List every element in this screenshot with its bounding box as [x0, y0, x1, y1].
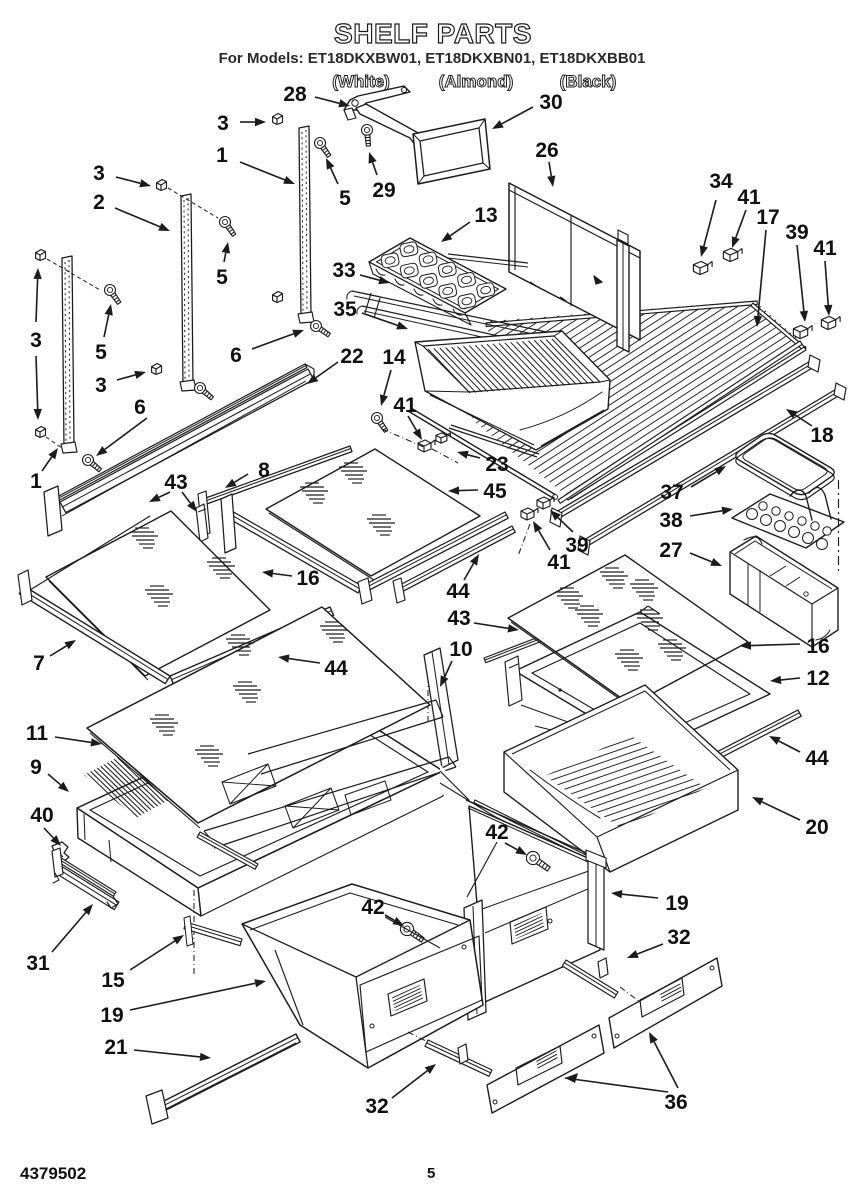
svg-text:3: 3: [217, 112, 229, 135]
svg-text:(White): (White): [332, 72, 390, 91]
svg-text:7: 7: [33, 652, 45, 675]
svg-text:18: 18: [810, 424, 834, 447]
svg-text:5: 5: [427, 1165, 435, 1182]
svg-text:37: 37: [660, 481, 683, 504]
svg-text:26: 26: [535, 139, 558, 162]
svg-text:10: 10: [449, 638, 472, 661]
svg-text:44: 44: [324, 657, 348, 680]
svg-text:5: 5: [95, 341, 107, 364]
svg-text:45: 45: [483, 480, 507, 503]
svg-text:41: 41: [813, 237, 837, 260]
svg-text:43: 43: [447, 607, 470, 630]
svg-text:34: 34: [709, 170, 733, 193]
svg-text:2: 2: [93, 191, 105, 214]
svg-text:SHELF PARTS: SHELF PARTS: [334, 18, 532, 49]
svg-text:32: 32: [667, 926, 690, 949]
svg-text:17: 17: [756, 206, 779, 229]
svg-text:16: 16: [806, 635, 829, 658]
svg-text:39: 39: [785, 221, 808, 244]
svg-text:(Almond): (Almond): [439, 72, 514, 91]
svg-text:6: 6: [134, 396, 146, 419]
svg-text:1: 1: [30, 470, 42, 493]
svg-text:33: 33: [332, 259, 355, 282]
svg-text:20: 20: [805, 816, 828, 839]
svg-text:(Black): (Black): [560, 72, 617, 91]
svg-text:32: 32: [365, 1095, 388, 1118]
svg-text:40: 40: [30, 804, 53, 827]
svg-text:21: 21: [104, 1036, 128, 1059]
svg-text:22: 22: [340, 345, 363, 368]
svg-text:44: 44: [805, 747, 829, 770]
svg-text:5: 5: [216, 266, 228, 289]
svg-text:15: 15: [101, 969, 125, 992]
svg-text:11: 11: [26, 722, 49, 745]
svg-text:38: 38: [659, 509, 683, 532]
svg-text:4379502: 4379502: [20, 1164, 86, 1183]
svg-text:8: 8: [258, 459, 270, 482]
svg-text:29: 29: [372, 179, 395, 202]
svg-text:36: 36: [664, 1091, 687, 1114]
svg-text:30: 30: [539, 91, 562, 114]
svg-text:6: 6: [230, 344, 242, 367]
svg-text:13: 13: [474, 204, 497, 227]
svg-text:19: 19: [100, 1004, 123, 1027]
svg-text:42: 42: [485, 821, 508, 844]
svg-text:3: 3: [93, 162, 105, 185]
svg-text:9: 9: [30, 756, 42, 779]
svg-text:43: 43: [164, 471, 187, 494]
svg-text:1: 1: [216, 144, 228, 167]
svg-text:35: 35: [333, 298, 357, 321]
svg-text:For Models: ET18DKXBW01, ET18D: For Models: ET18DKXBW01, ET18DKXBN01, ET…: [219, 50, 646, 67]
svg-text:14: 14: [382, 346, 406, 369]
svg-text:16: 16: [296, 567, 319, 590]
svg-text:3: 3: [95, 374, 107, 397]
svg-text:27: 27: [659, 539, 682, 562]
svg-text:12: 12: [806, 667, 829, 690]
svg-text:44: 44: [446, 580, 470, 603]
svg-text:19: 19: [665, 892, 688, 915]
svg-text:23: 23: [485, 453, 508, 476]
svg-text:28: 28: [283, 83, 307, 106]
svg-text:5: 5: [339, 187, 351, 210]
svg-text:31: 31: [26, 952, 50, 975]
svg-text:41: 41: [393, 394, 417, 417]
svg-text:41: 41: [547, 551, 571, 574]
svg-text:3: 3: [30, 329, 42, 352]
svg-text:42: 42: [361, 896, 384, 919]
